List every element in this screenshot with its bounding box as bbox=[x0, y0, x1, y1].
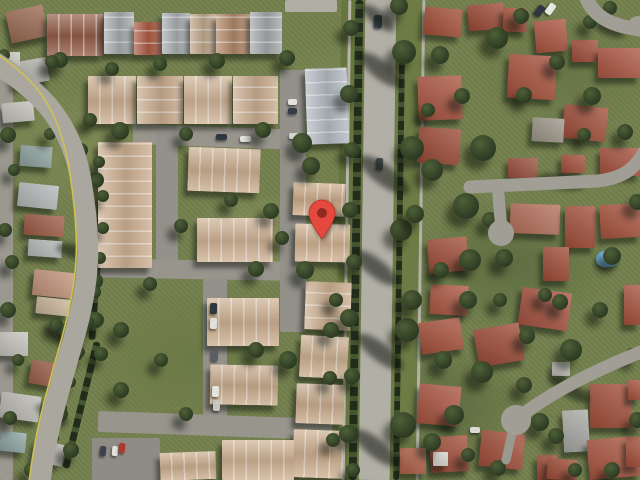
culdesac bbox=[488, 220, 514, 246]
map-pin-icon[interactable] bbox=[308, 198, 336, 242]
pin-body bbox=[309, 200, 335, 239]
road bbox=[526, 350, 640, 412]
satellite-map[interactable] bbox=[0, 0, 640, 480]
culdesac bbox=[501, 405, 531, 435]
pin-dot bbox=[317, 208, 327, 218]
road bbox=[470, 152, 640, 187]
